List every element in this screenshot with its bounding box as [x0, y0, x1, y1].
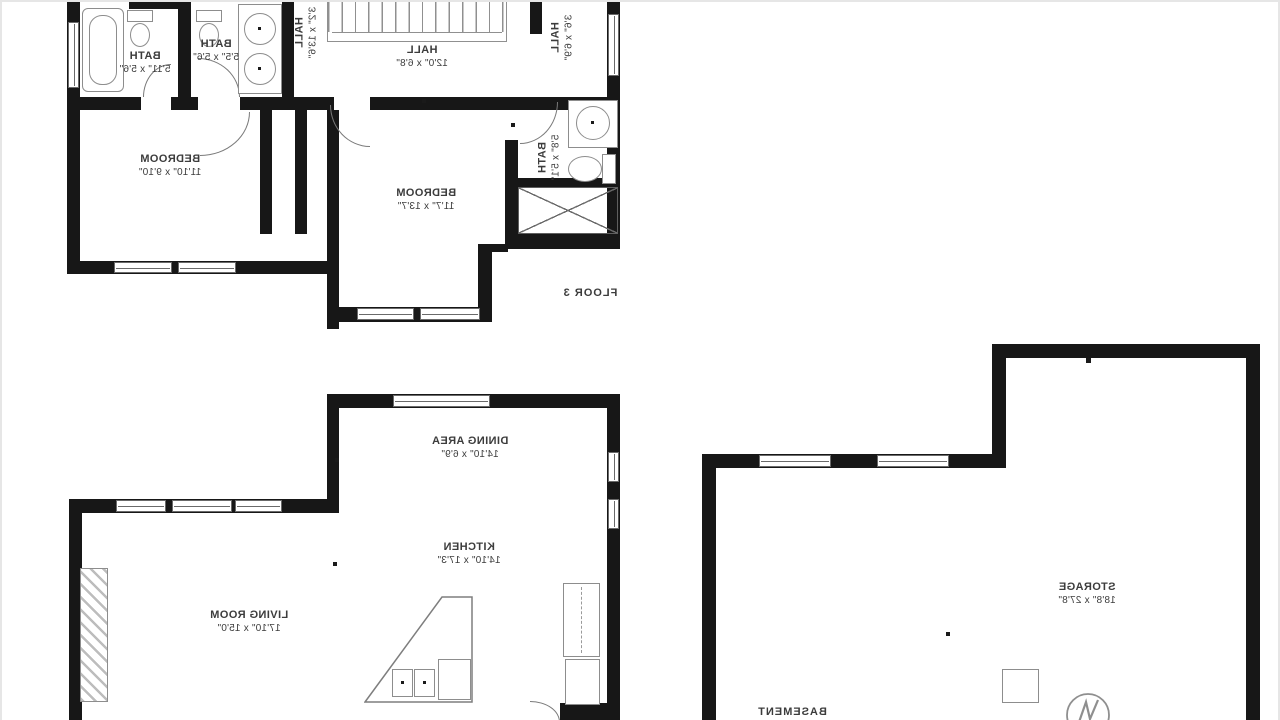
window: [608, 14, 619, 76]
wall-segment: [992, 344, 1260, 358]
door-arc: [200, 112, 250, 156]
room-label-bedroom-left: BEDROOM 11'10" x 9'10": [105, 152, 235, 179]
wall-segment: [171, 97, 198, 110]
sink-drain: [591, 121, 594, 124]
room-label-living: LIVING ROOM 17'10" x 15'0": [179, 608, 319, 635]
room-label-kitchen: KITCHEN 14'10" x 17'3": [399, 540, 539, 567]
room-label-hall-right: HALL 3'6" x 6'9": [548, 0, 575, 80]
wall-segment: [327, 110, 339, 329]
window: [357, 308, 414, 320]
support-column: [1002, 669, 1039, 703]
door-hinge-dot: [335, 458, 339, 462]
wall-segment: [560, 703, 620, 720]
room-dims: 5'5" x 5'6": [166, 51, 266, 64]
room-name: KITCHEN: [399, 540, 539, 554]
window: [172, 500, 232, 512]
marker-dot: [946, 632, 950, 636]
toilet-bowl: [568, 156, 602, 182]
wall-segment: [260, 110, 272, 234]
wall-segment: [530, 2, 542, 34]
wall-segment: [327, 394, 339, 513]
basement-label: BASEMENT: [722, 705, 862, 719]
room-label-hall-center: HALL 12'0" x 6'8": [362, 43, 482, 70]
wall-segment: [478, 244, 508, 252]
window: [178, 262, 236, 273]
wall-segment: [505, 140, 518, 240]
wall-segment: [1246, 344, 1260, 720]
wall-segment: [478, 247, 492, 322]
room-name: HALL: [292, 0, 306, 75]
wall-segment: [702, 454, 716, 720]
window: [235, 500, 282, 512]
sink-drain: [258, 27, 261, 30]
room-dims: 14'10" x 17'3": [399, 554, 539, 567]
staircase: [327, 2, 507, 42]
window: [608, 452, 619, 482]
wall-segment: [607, 394, 620, 720]
room-label-hall-left: HALL 3'2" x 13'6": [292, 0, 319, 75]
floorplan-image: BATH 5'11" x 5'6" BATH 5'5" x 5'6" HALL …: [0, 0, 1280, 720]
room-dims: 17'10" x 15'0": [179, 622, 319, 635]
wall-segment: [992, 344, 1006, 468]
door-hinge-dot: [422, 99, 426, 103]
room-label-dining: DINING AREA 14'10" x 6'9": [400, 434, 540, 461]
wall-segment: [240, 97, 334, 110]
marker-dot: [1086, 358, 1091, 363]
north-arrow-icon: [1064, 691, 1112, 720]
window: [116, 500, 166, 512]
linen-closet: [518, 187, 618, 234]
door-hinge-dot: [333, 562, 337, 566]
window: [114, 262, 172, 273]
room-label-bedroom-main: BEDROOM 11'7" x 13'7": [361, 186, 491, 213]
room-label-storage: STORAGE 18'8" x 27'8": [1017, 580, 1157, 607]
room-name: HALL: [362, 43, 482, 57]
toilet: [602, 154, 616, 184]
room-dims: 12'0" x 6'8": [362, 57, 482, 70]
room-name: HALL: [548, 0, 562, 80]
room-name: LIVING ROOM: [179, 608, 319, 622]
wall-segment: [702, 454, 1004, 468]
wall-segment: [505, 234, 620, 249]
toilet-bowl: [130, 23, 150, 47]
room-dims: 5'8" x 5'1": [550, 116, 563, 200]
window: [608, 499, 619, 529]
sink-drain: [401, 681, 404, 684]
room-label-bath-mid: BATH 5'5" x 5'6": [166, 37, 266, 64]
room-dims: 3'6" x 6'9": [563, 0, 576, 80]
sink-drain: [258, 67, 261, 70]
toilet: [196, 10, 222, 22]
room-dims: 11'7" x 13'7": [361, 200, 491, 213]
refrigerator: [565, 659, 600, 705]
room-name: STORAGE: [1017, 580, 1157, 594]
room-label-bath-right: BATH 5'8" x 5'1": [535, 116, 562, 200]
room-dims: 3'2" x 13'6": [307, 0, 320, 75]
room-dims: 5'11" x 5'6": [95, 63, 195, 76]
room-name: BEDROOM: [361, 186, 491, 200]
window: [68, 22, 79, 88]
door-hinge-dot: [511, 123, 515, 127]
room-dims: 11'10" x 9'10": [105, 166, 235, 179]
sink-drain: [423, 681, 426, 684]
window: [877, 455, 949, 467]
room-name: BATH: [535, 116, 549, 200]
toilet: [127, 10, 153, 22]
stair-rail: [332, 32, 502, 39]
wall-segment: [67, 97, 141, 110]
window: [393, 395, 490, 407]
wall-segment: [129, 2, 182, 9]
fireplace: [80, 568, 108, 702]
dishwasher: [438, 659, 471, 700]
window: [420, 308, 480, 320]
window: [759, 455, 831, 467]
floor3-label: FLOOR 3: [530, 286, 650, 300]
wall-segment: [295, 110, 307, 234]
room-dims: 14'10" x 6'9": [400, 448, 540, 461]
cabinet-dash-line: [581, 587, 582, 653]
room-name: DINING AREA: [400, 434, 540, 448]
room-name: BEDROOM: [105, 152, 235, 166]
room-dims: 18'8" x 27'8": [1017, 594, 1157, 607]
room-name: BATH: [166, 37, 266, 51]
